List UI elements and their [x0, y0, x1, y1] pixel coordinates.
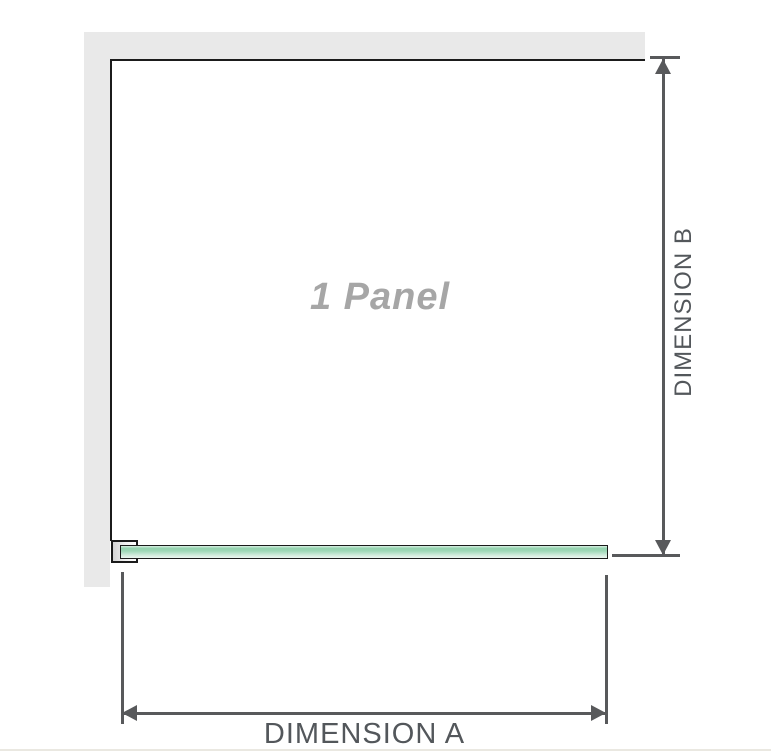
dimension-b-line — [662, 59, 665, 555]
dimension-a-line — [123, 712, 606, 715]
panel-outline-left-edge — [110, 59, 112, 541]
dimension-a-label: DIMENSION A — [123, 718, 606, 751]
dimension-b-label: DIMENSION B — [670, 227, 698, 397]
bottom-edge-line — [0, 749, 771, 751]
wall-top — [84, 32, 645, 59]
panel-count-label: 1 Panel — [230, 276, 530, 319]
dimension-a-left-extension-line — [121, 572, 124, 724]
panel-dimension-diagram: 1 Panel DIMENSION B DIMENSION A — [0, 0, 771, 755]
arrow-up-icon — [655, 59, 671, 74]
arrow-down-icon — [655, 540, 671, 555]
glass-panel — [120, 545, 608, 559]
panel-outline-top-edge — [110, 59, 645, 61]
dimension-a-right-extension-line — [605, 575, 608, 724]
wall-left — [84, 32, 110, 587]
